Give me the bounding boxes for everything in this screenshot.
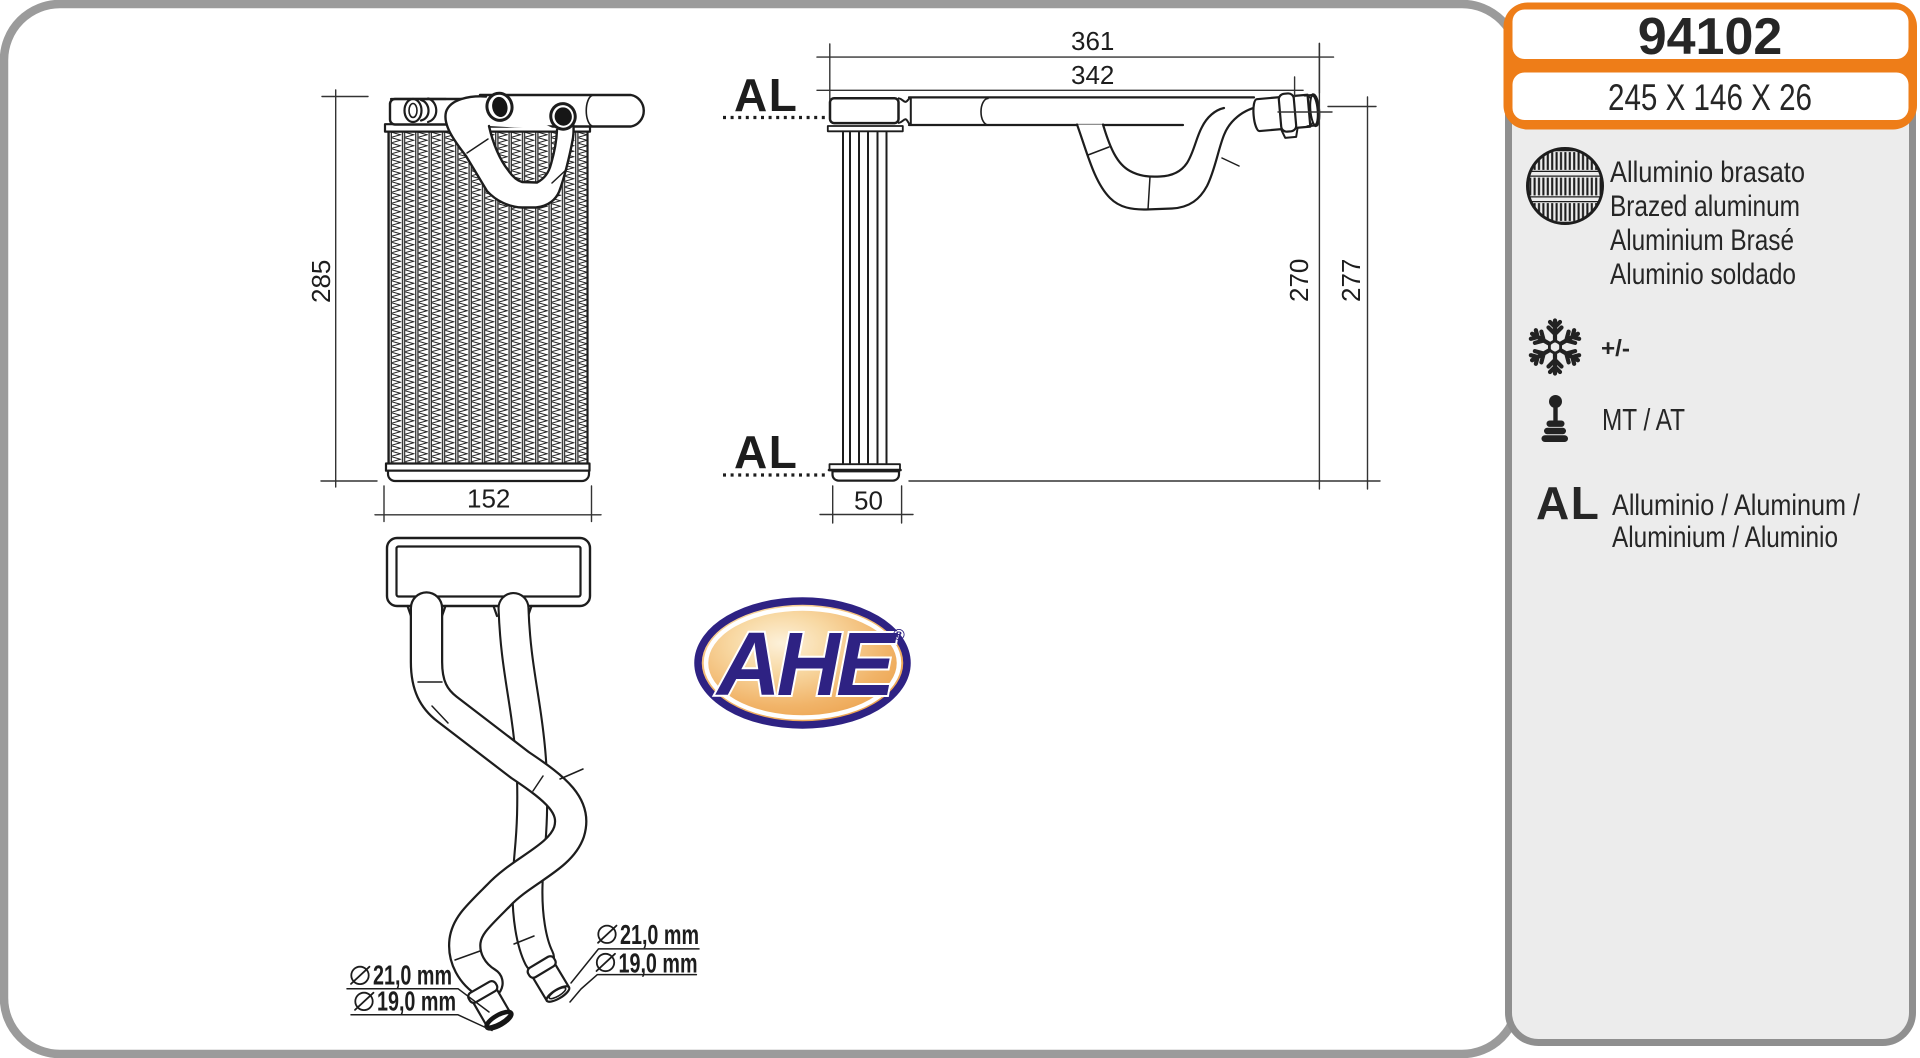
svg-text:21,0 mm: 21,0 mm <box>620 919 699 950</box>
svg-text:285: 285 <box>306 260 336 303</box>
svg-text:152: 152 <box>467 484 510 514</box>
svg-text:50: 50 <box>854 486 883 516</box>
svg-text:AHE: AHE <box>715 615 898 715</box>
svg-text:Alluminio / Aluminum /: Alluminio / Aluminum / <box>1612 489 1861 522</box>
svg-text:MT / AT: MT / AT <box>1602 402 1685 437</box>
svg-text:277: 277 <box>1336 259 1366 302</box>
svg-text:Aluminium / Aluminio: Aluminium / Aluminio <box>1612 521 1838 554</box>
svg-text:94102: 94102 <box>1638 8 1783 66</box>
svg-text:AL: AL <box>1536 477 1600 529</box>
svg-text:342: 342 <box>1071 60 1114 90</box>
svg-text:AL: AL <box>734 69 798 121</box>
svg-text:Alluminio brasato: Alluminio brasato <box>1610 156 1805 189</box>
svg-text:Aluminio soldado: Aluminio soldado <box>1610 258 1796 291</box>
svg-text:19,0 mm: 19,0 mm <box>377 985 456 1016</box>
svg-text:Brazed aluminum: Brazed aluminum <box>1610 190 1800 223</box>
svg-text:Aluminium Brasé: Aluminium Brasé <box>1610 224 1794 257</box>
svg-text:+/-: +/- <box>1601 335 1630 361</box>
svg-text:361: 361 <box>1071 26 1114 56</box>
svg-text:245 X 146 X 26: 245 X 146 X 26 <box>1608 77 1812 118</box>
svg-text:®: ® <box>893 627 905 644</box>
svg-text:AL: AL <box>734 426 798 478</box>
svg-text:270: 270 <box>1284 259 1314 302</box>
